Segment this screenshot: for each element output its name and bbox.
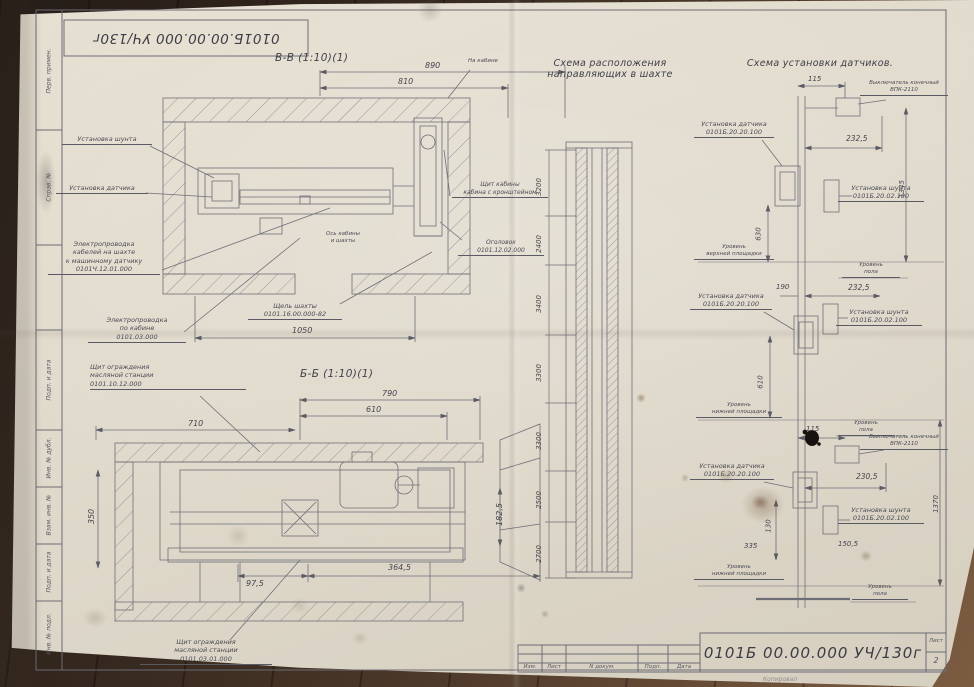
vv-label-wiring-shaft: Электропроводка кабелей на шахте к машин… (48, 240, 160, 275)
shaft-dim-6: 2500 (535, 491, 543, 509)
bb-dim-97: 97,5 (246, 579, 264, 588)
sensors-shunt-label-3: Установка шунта 0101Б.20.02.100 (838, 506, 924, 524)
sensors-dim-1345: 1345 (898, 180, 906, 198)
titleblock-doc-number: 0101Б 00.00.000 УЧ/130г (700, 633, 926, 672)
shaft-dim-2: 2400 (535, 235, 543, 253)
vv-dim-1050: 1050 (292, 326, 312, 335)
sensors-sensor-label-2: Установка датчика 0101Б.20.20.100 (690, 292, 772, 310)
margin-label-vzam: Взам. инв. № (46, 495, 53, 536)
shaft-dim-7: 2700 (535, 545, 543, 563)
vv-label-sensor: Установка датчика (56, 184, 148, 194)
titleblock-sheet-number: 2 (926, 656, 946, 665)
sensors-level-bottom-label-1: Уровень нижней площадки (696, 402, 782, 418)
bb-dim-350: 350 (87, 509, 96, 524)
top-stamp-number: 0101Б.00.00.000 УЧ/130г (64, 20, 308, 56)
sensors-dim-2325-2: 232,5 (848, 283, 869, 292)
sensors-sensor-label-1: Установка датчика 0101Б.20.20.100 (694, 120, 774, 138)
margin-label-podp2: Подп. и дата (46, 552, 53, 593)
vv-label-head: Оголовок 0101.12.02.000 (458, 239, 544, 256)
bb-dim-182: 182,5 (495, 503, 504, 526)
shaft-dim-3: 3400 (535, 295, 543, 313)
bb-section-title: Б-Б (1:10)(1) (300, 368, 373, 380)
shaft-dim-4: 3300 (535, 364, 543, 382)
shaft-schema-title: Схема расположения направляющих в шахте (525, 58, 695, 80)
margin-label-invpod: Инв. № подл. (46, 613, 53, 654)
sensors-level-floor-1: Уровень пола (842, 262, 900, 278)
sensors-switch-label-2: Выключатель конечный ВПК-2110 (860, 434, 948, 450)
sensors-dim-2305: 230,5 (856, 472, 877, 481)
sensors-schema-title: Схема установки датчиков. (725, 58, 915, 69)
vv-label-shunt: Установка шунта (62, 135, 152, 145)
sensors-level-floor-3: Уровень пола (852, 584, 908, 600)
vv-label-axis: Ось кабины и шахты (318, 231, 368, 245)
bb-dim-790: 790 (382, 389, 397, 398)
titleblock-col-ndoc: N докум. (566, 664, 638, 670)
vv-drawing (146, 66, 565, 342)
bb-dim-610: 610 (366, 405, 381, 414)
bb-label-shield-top: Щит ограждения масляной станции 0101.10.… (90, 363, 246, 390)
titleblock-col-podp: Подп. (638, 664, 668, 670)
vv-section-title: В-В (1:10)(1) (275, 52, 348, 64)
sensors-dim-335: 335 (744, 542, 757, 550)
sensors-dim-1370: 1370 (932, 495, 940, 513)
titleblock-col-data: Дата (668, 664, 700, 670)
sensors-level-bottom-label-2: Уровень нижней площадки (694, 564, 784, 580)
margin-label-perv: Перв. примен. (46, 48, 53, 93)
sensors-dim-2325-1: 232,5 (846, 134, 867, 143)
sensors-dim-630: 630 (755, 227, 763, 240)
margin-label-invdub: Инв. № дубл. (46, 437, 53, 478)
bb-label-shield-bottom: Щит ограждения масляной станции 0101.03.… (140, 638, 272, 665)
sensors-level-top-label: Уровень верхней площадки (694, 244, 774, 260)
linework-svg (0, 0, 974, 687)
vv-note-cab: На кабине (452, 58, 514, 65)
vv-label-cab-shield: Щит кабины кабина с кронштейном (452, 181, 548, 198)
bb-drawing (96, 396, 540, 640)
sensors-switch-label-1: Выключатель конечный ВПК-2110 (860, 80, 948, 96)
sensors-sensor-label-3: Установка датчика 0101Б.20.20.100 (690, 462, 774, 480)
sensors-drawing (698, 82, 944, 608)
titleblock-sheet-word: Лист (926, 638, 946, 644)
titleblock-col-izm: Изм. (518, 664, 542, 670)
vv-dim-890: 890 (425, 61, 440, 70)
sensors-dim-130: 130 (765, 519, 773, 532)
sensors-shunt-label-1: Установка шунта 0101Б.20.02.100 (838, 184, 924, 202)
sensors-shunt-label-2: Установка шунта 0101Б.20.02.100 (836, 308, 922, 326)
sensors-dim-1505: 150,5 (838, 540, 858, 548)
titleblock-copied: Копировал (740, 676, 820, 683)
bb-dim-710: 710 (188, 419, 203, 428)
sensors-dim-610: 610 (757, 375, 765, 388)
titleblock-col-list: Лист (542, 664, 566, 670)
vv-label-gap: Щель шахты 0101.16.00.000-82 (248, 302, 342, 320)
vv-label-wiring-cab: Электропроводка по кабине 0101.03.000 (88, 316, 186, 343)
margin-label-podp1: Подп. и дата (46, 360, 53, 401)
shaft-dim-5: 3300 (535, 432, 543, 450)
shaft-drawing (545, 142, 632, 578)
vv-dim-810: 810 (398, 77, 413, 86)
sensors-dim-115-2: 115 (806, 425, 819, 433)
sensors-dim-190: 190 (776, 283, 789, 291)
sensors-dim-115-1: 115 (808, 75, 821, 83)
shaft-dim-1: 3200 (535, 178, 543, 196)
margin-label-sprav: Справ. № (46, 172, 53, 201)
bb-dim-364: 364,5 (388, 563, 411, 572)
drawing-sheet: 0101Б.00.00.000 УЧ/130г Перв. примен. Сп… (0, 0, 974, 687)
